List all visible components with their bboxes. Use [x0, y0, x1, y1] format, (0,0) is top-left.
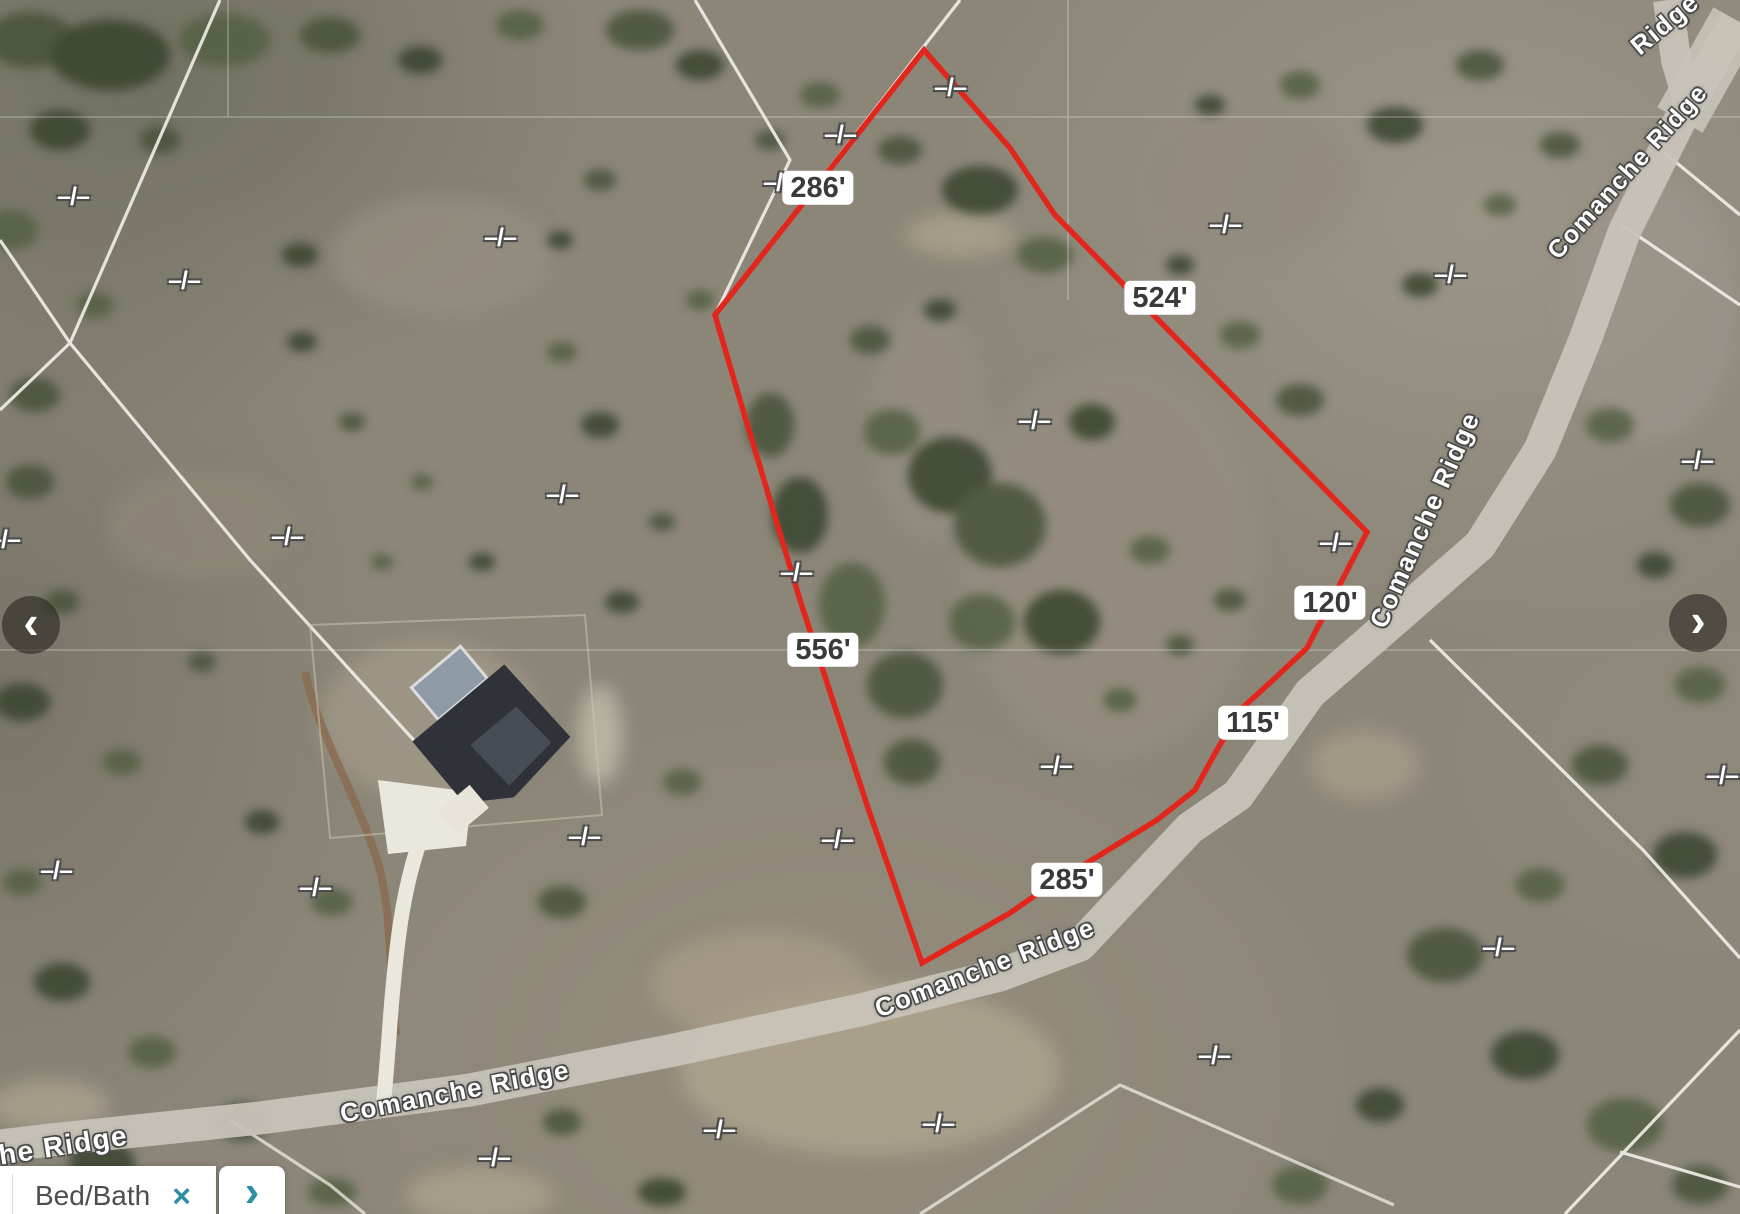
bed-bath-filter-chip[interactable]: Bed/Bath — [35, 1180, 150, 1212]
filter-chip-bar: Bed/Bath × — [0, 1166, 216, 1214]
chevron-left-icon: ‹ — [23, 599, 38, 645]
carousel-next-button[interactable]: › — [1669, 594, 1727, 652]
carousel-prev-button[interactable]: ‹ — [2, 596, 60, 654]
chip-divider — [12, 1174, 13, 1214]
chevron-right-icon: › — [1690, 597, 1705, 643]
satellite-imagery — [0, 0, 1740, 1214]
close-icon[interactable]: × — [172, 1180, 191, 1212]
chips-scroll-next-button[interactable]: › — [219, 1166, 285, 1214]
chevron-right-icon: › — [245, 1170, 260, 1214]
satellite-map[interactable]: –/––/––/––/––/––/––/––/––/––/––/––/––/––… — [0, 0, 1740, 1214]
